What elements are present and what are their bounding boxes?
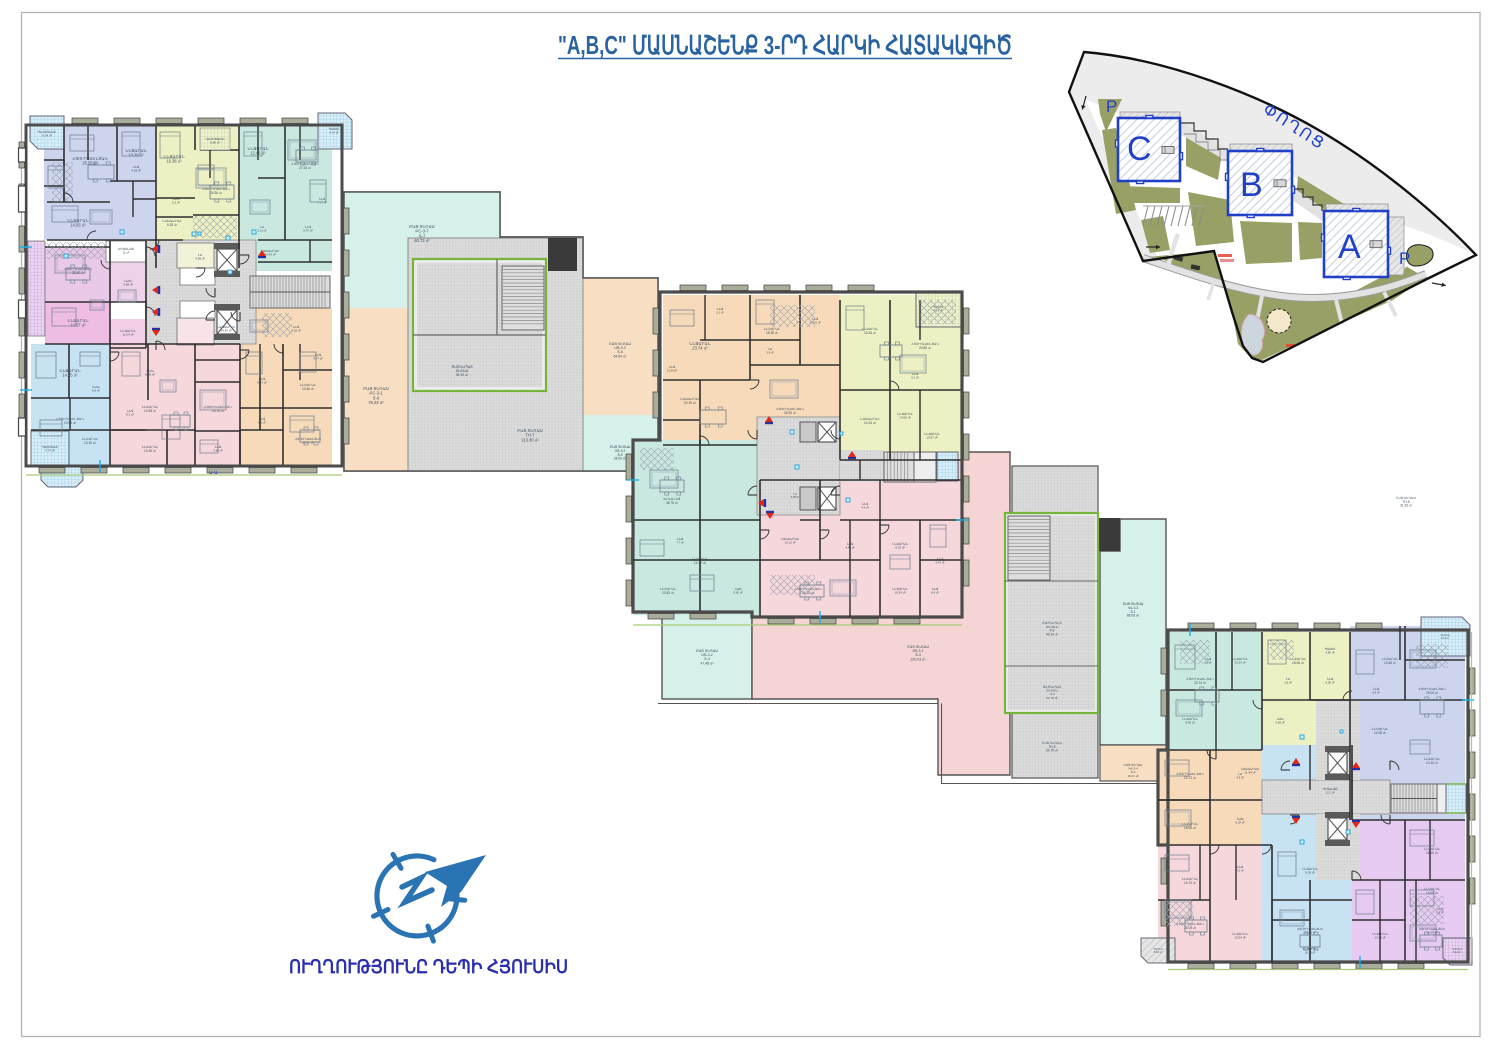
svg-text:ՆԱԽ8.29 մ²: ՆԱԽ8.29 մ² [1236, 817, 1245, 824]
svg-text:A: A [1338, 228, 1361, 266]
svg-text:ՆՆՋ7.2 մ²: ՆՆՋ7.2 մ² [1236, 865, 1244, 872]
svg-text:ՆՆՋԱՐԱՆ16.38 մ²: ՆՆՋԱՐԱՆ16.38 մ² [163, 154, 184, 164]
svg-text:ՆԱԽ5.69 մ²: ՆԱԽ5.69 մ² [1276, 717, 1285, 724]
svg-text:ՆՆՋ4.4 մ²: ՆՆՋ4.4 մ² [861, 502, 869, 509]
svg-text:ՆՆՋԱՐԱՆ23.74 մ²: ՆՆՋԱՐԱՆ23.74 մ² [689, 341, 710, 351]
svg-text:P: P [1399, 249, 1410, 268]
svg-text:ՆԱԽ8.60 մ²: ՆԱԽ8.60 մ² [734, 587, 743, 594]
svg-text:ՆՆՋ5.1 մ²: ՆՆՋ5.1 մ² [716, 307, 724, 314]
svg-text:ՆՆՋ9.2 մ²: ՆՆՋ9.2 մ² [258, 417, 266, 425]
svg-text:ՊԱՏՇԳ4.80 մ²: ՊԱՏՇԳ4.80 մ² [1325, 647, 1336, 654]
svg-text:ՆԱԽ5.2 մ²: ՆԱԽ5.2 մ² [172, 197, 180, 205]
svg-text:ՆՆՋ8.4 մ²: ՆՆՋ8.4 մ² [931, 587, 939, 594]
svg-text:ՆՆՋԱՐԱՆ14.75 մ²: ՆՆՋԱՐԱՆ14.75 մ² [59, 368, 80, 378]
svg-text:ՆՆՋ5.4 մ²: ՆՆՋ5.4 մ² [1372, 687, 1380, 694]
svg-text:"A,B,C" ՄԱՍՆԱՇԵՆՔ 3-ՐԴ ՀԱՐԿԻ Հ: "A,B,C" ՄԱՍՆԱՇԵՆՔ 3-ՐԴ ՀԱՐԿԻ ՀԱՏԱԿԱԳԻԾ [558, 30, 1012, 60]
svg-text:ՆԱԽ8.36 մ²: ՆԱԽ8.36 մ² [145, 369, 155, 377]
svg-text:ՊԱՏՇԳ9.14 մ²: ՊԱՏՇԳ9.14 մ² [329, 127, 340, 134]
svg-text:Ա-Ա: Ա-Ա [209, 470, 218, 475]
svg-text:C: C [1127, 130, 1152, 168]
svg-text:P: P [1106, 97, 1117, 116]
svg-text:ՆՆՋ8.1 մ²: ՆՆՋ8.1 մ² [126, 409, 134, 417]
svg-text:ՆՆՋ7.7 մ²: ՆՆՋ7.7 մ² [676, 537, 684, 544]
svg-text:B: B [1240, 166, 1263, 204]
svg-text:ՈՒՂՂՈՒԹՅՈՒՆԸ ԴԵՊԻ ՀՅՈՒՍԻՍ: ՈՒՂՂՈՒԹՅՈՒՆԸ ԴԵՊԻ ՀՅՈՒՍԻՍ [289, 956, 568, 977]
svg-text:ՆԱԽ6.5 մ²: ՆԱԽ6.5 մ² [92, 385, 100, 393]
svg-text:ՆԱԽ9.28 մ²: ՆԱԽ9.28 մ² [123, 279, 133, 287]
